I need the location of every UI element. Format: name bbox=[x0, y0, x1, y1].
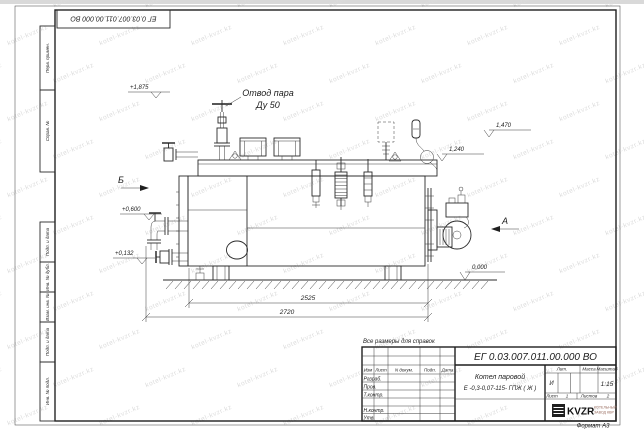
col-izm: Изм bbox=[364, 368, 372, 373]
margin-field-podp-data-2: Подп. и дата bbox=[45, 327, 50, 356]
lit-mass-scale-section: Лит. Масса Масштаб И 1:15 Лист 1 Листов … bbox=[455, 365, 618, 399]
dimension-lines: 2525 2720 bbox=[142, 246, 432, 322]
lit-label: Лит. bbox=[556, 367, 568, 372]
top-hatch-boxes bbox=[240, 138, 300, 160]
col-data: Дата bbox=[441, 368, 454, 373]
row-utv: Утв. bbox=[364, 416, 375, 422]
col-list: Лист bbox=[374, 368, 387, 373]
product-name-cell: Котел паровой Е -0,3-0,07-115- ГПЖ ( Ж ) bbox=[464, 373, 537, 392]
view-b-arrow bbox=[140, 185, 149, 191]
view-a-arrow bbox=[491, 226, 500, 232]
sheets-label: Листов bbox=[580, 394, 598, 399]
boiler-side-view: Отвод пара Ду 50 Б А +1,875 +0,600 +0,13… bbox=[113, 85, 531, 322]
company-logo: KVZR КОТЕЛЬНЫЙ ЗАВОД КВР bbox=[552, 404, 617, 418]
ground-line bbox=[163, 280, 497, 289]
top-designation-stamp: ЕГ 0.03.007.011.00.000 ВО bbox=[57, 10, 170, 28]
product-type: Е -0,3-0,07-115- ГПЖ ( Ж ) bbox=[464, 386, 537, 392]
steam-label-leader bbox=[226, 97, 241, 106]
col-podp: Подп. bbox=[424, 368, 436, 373]
margin-field-vzam-inv: Взам. инв. № bbox=[45, 293, 50, 321]
steam-outlet-dn-label: Ду 50 bbox=[255, 100, 279, 110]
row-razrab: Разраб. bbox=[364, 377, 382, 383]
dimension-2720: 2720 bbox=[279, 309, 295, 316]
title-block: Изм Лист N докум. Подп. Дата Разраб. Про… bbox=[362, 347, 618, 430]
sheet-value: 1 bbox=[566, 394, 569, 399]
pressure-gauge bbox=[412, 120, 437, 170]
row-tkontr: Т.контр. bbox=[364, 393, 384, 399]
view-a-label: А bbox=[501, 216, 508, 226]
col-doc: N докум. bbox=[395, 368, 413, 373]
scale-value: 1:15 bbox=[601, 381, 614, 388]
support-legs bbox=[213, 266, 401, 280]
margin-field-podp-data-1: Подп. и дата bbox=[45, 227, 50, 256]
elevation-marks: +1,875 +0,600 +0,132 0,000 1,470 1,240 bbox=[113, 85, 531, 280]
sheet-label: Лист bbox=[545, 394, 558, 399]
drawing-sheet: kotel-kvzr.kzkotel-kvzr.kzkotel-kvzr.kzk… bbox=[0, 0, 644, 430]
margin-field-perv-primen: Перв. примен. bbox=[45, 43, 50, 73]
logo-subtitle-2: ЗАВОД КВР bbox=[594, 411, 614, 415]
row-nkontr: Н.контр. bbox=[364, 408, 385, 414]
elevation-0600: +0,600 bbox=[122, 207, 141, 213]
top-stamp-designation: ЕГ 0.03.007.011.00.000 ВО bbox=[70, 15, 157, 22]
elevation-1240: 1,240 bbox=[449, 147, 465, 153]
elevation-1875: +1,875 bbox=[130, 85, 149, 91]
steam-outlet-valve bbox=[212, 97, 241, 160]
margin-field-sprav-no: Справ. № bbox=[45, 121, 50, 142]
signature-table: Изм Лист N докум. Подп. Дата Разраб. Про… bbox=[362, 347, 455, 422]
logo-subtitle-1: КОТЕЛЬНЫЙ bbox=[594, 406, 617, 410]
product-name: Котел паровой bbox=[475, 373, 525, 381]
engineering-drawing: Перв. примен. Справ. № Подп. и дата Инв.… bbox=[0, 0, 644, 430]
elevation-1470: 1,470 bbox=[496, 123, 512, 129]
elevation-0000: 0,000 bbox=[472, 265, 488, 271]
furnace-opening bbox=[227, 241, 248, 259]
sheets-value: 2 bbox=[606, 394, 610, 399]
burner-unit bbox=[428, 187, 471, 250]
boiler-shell bbox=[176, 176, 434, 266]
elevation-0132: +0,132 bbox=[115, 251, 134, 257]
view-b-label: Б bbox=[118, 175, 124, 185]
margin-field-inv-podl: Инв. № подл. bbox=[45, 377, 50, 405]
dimension-2525: 2525 bbox=[300, 295, 316, 302]
logo-text: KVZR bbox=[567, 407, 595, 418]
left-margin-fields: Перв. примен. Справ. № Подп. и дата Инв.… bbox=[40, 26, 55, 421]
mass-label: Масса bbox=[582, 367, 596, 372]
steam-outlet-label: Отвод пара bbox=[242, 88, 293, 98]
boiler-platform bbox=[198, 160, 437, 176]
scale-label: Масштаб bbox=[596, 367, 617, 372]
lit-value: И bbox=[549, 381, 554, 387]
lifting-lug bbox=[229, 151, 241, 160]
dashed-outline-fitting bbox=[378, 122, 401, 161]
left-side-fittings bbox=[147, 143, 204, 280]
format-label: Формат А3 bbox=[577, 424, 610, 430]
margin-field-inv-dubl: Инв. № дубл. bbox=[45, 263, 50, 291]
water-level-gauges bbox=[312, 157, 372, 210]
row-prov: Пров. bbox=[364, 385, 377, 391]
document-designation: ЕГ 0.03.007.011.00.000 ВО bbox=[474, 352, 597, 363]
reference-note: Все размеры для справок bbox=[363, 339, 436, 345]
